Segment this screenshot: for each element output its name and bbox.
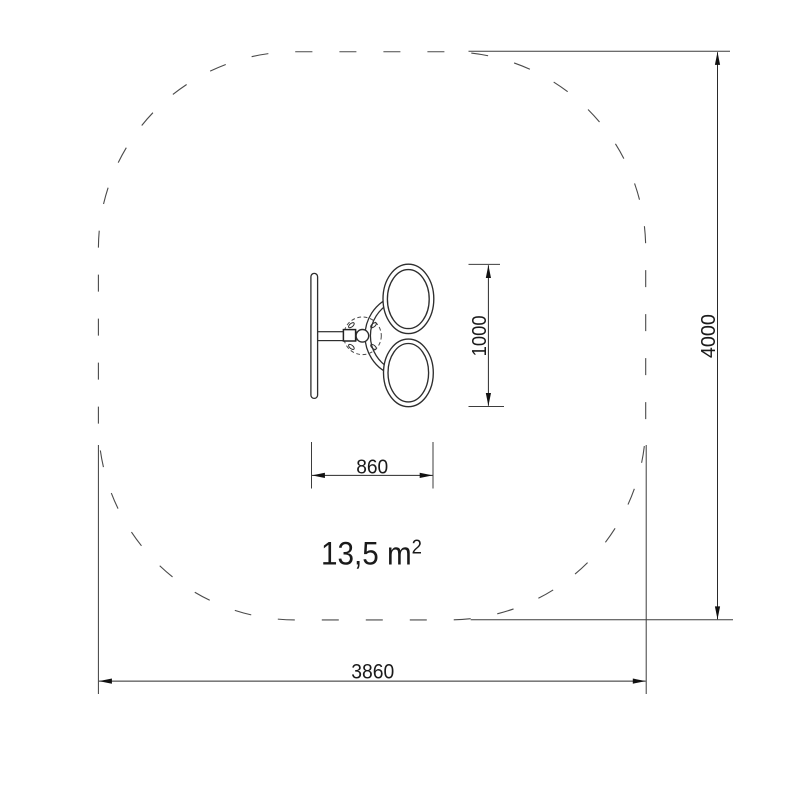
svg-text:860: 860 <box>356 456 388 478</box>
svg-text:13,5 m2: 13,5 m2 <box>321 536 422 572</box>
svg-text:4000: 4000 <box>698 314 720 358</box>
svg-text:1000: 1000 <box>469 315 491 356</box>
svg-text:3860: 3860 <box>351 661 394 684</box>
